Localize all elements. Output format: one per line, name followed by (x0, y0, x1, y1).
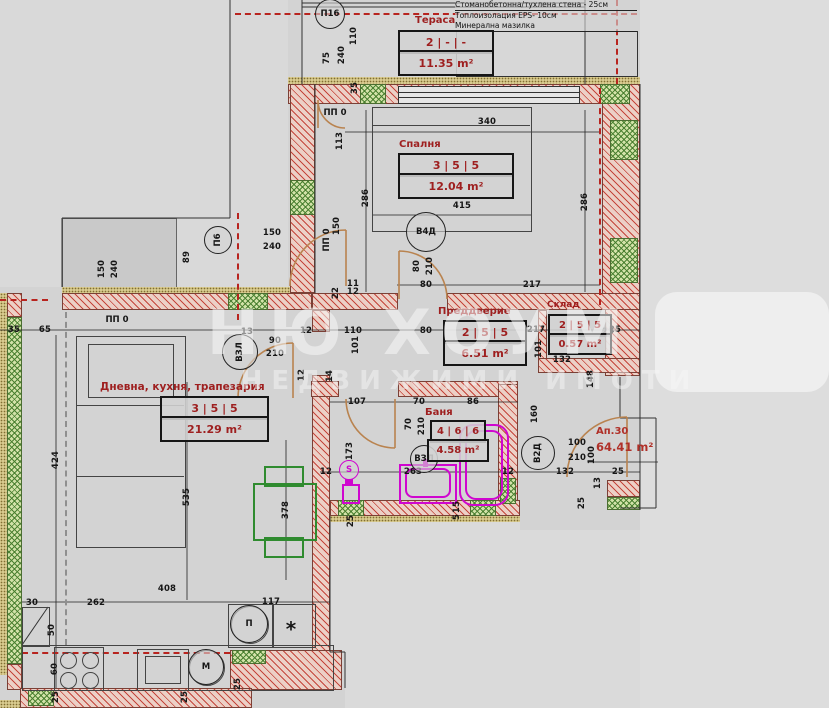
dimension-label: 15 (452, 501, 462, 513)
section-dash-line (65, 312, 67, 645)
red-dashed-axis (237, 213, 239, 320)
dimension-label: 150 (263, 228, 281, 238)
dimension-label: 35 (350, 82, 360, 94)
dimension-label: 210 (425, 257, 435, 275)
dimension-label: 424 (51, 451, 61, 469)
dimension-label: 25 (233, 678, 243, 690)
dimension-label: 117 (262, 597, 280, 607)
dimension-label: 217 (527, 325, 545, 335)
cabinet (22, 607, 50, 647)
dimension-label: 340 (478, 117, 496, 127)
chair (264, 466, 304, 487)
facade-band (330, 516, 520, 522)
outside-area (330, 522, 520, 652)
wall-segment (607, 480, 640, 497)
wall-segment (7, 293, 22, 317)
dimension-label: 240 (337, 46, 347, 64)
dimension-label: 110 (344, 326, 362, 336)
room-area-bedroom: 12.04 m² (398, 173, 514, 199)
door-window-marker: М (188, 649, 224, 685)
room-name-hallway: Преддверие (438, 306, 511, 317)
insulation-segment (607, 497, 640, 510)
room-area-living: 21.29 m² (160, 416, 269, 442)
dimension-label: 90 (269, 336, 281, 346)
door-window-marker: В4Д (406, 212, 446, 252)
dimension-label: 5 (452, 514, 462, 520)
dimension-label: 101 (351, 336, 361, 354)
dimension-label: 80 (420, 280, 432, 290)
door-arc (399, 251, 447, 299)
dimension-label: 60 (50, 663, 60, 675)
dimension-label: 75 (322, 52, 332, 64)
facade-band (0, 293, 7, 675)
dimension-label: 70 (413, 397, 425, 407)
dimension-label: 113 (335, 132, 345, 150)
door-window-marker: П6 (204, 226, 232, 254)
dimension-label: 240 (110, 260, 120, 278)
dimension-label: 35 (8, 325, 20, 335)
legend-line: Стоманобетонна/тухлена стена - 25см (455, 0, 637, 11)
dimension-label: 13 (593, 477, 603, 489)
insulation-segment (228, 293, 268, 310)
red-dashed-axis (0, 299, 48, 301)
dimension-label: 148 (586, 370, 596, 388)
room-name-bedroom: Спалня (399, 139, 441, 150)
dimension-label: 132 (556, 467, 574, 477)
dimension-label: 286 (580, 193, 590, 211)
insulation-segment (7, 317, 22, 664)
dimension-label: 12 (320, 467, 332, 477)
dimension-label: 110 (349, 27, 359, 45)
facade-band (288, 77, 640, 84)
wall-segment (7, 664, 22, 690)
apartment-label: Ап.30 (596, 426, 628, 437)
dimension-label: 262 (87, 598, 105, 608)
dimension-label: 80 (412, 260, 422, 272)
chair (264, 537, 304, 558)
door-window-marker: ВЗЛ (222, 334, 258, 370)
dimension-label: 210 (417, 417, 427, 435)
dimension-label: 101 (534, 340, 544, 358)
dimension-label: 50 (47, 624, 57, 636)
dimension-label: 415 (453, 201, 471, 211)
dimension-label: 30 (26, 598, 38, 608)
dimension-label: 65 (39, 325, 51, 335)
wall-segment (312, 310, 330, 332)
window (398, 86, 580, 104)
dimension-label: 89 (182, 251, 192, 263)
door-window-marker: ПП 0 (105, 315, 128, 325)
door-window-marker: П (230, 605, 268, 643)
dimension-label: 535 (182, 488, 192, 506)
dimension-label: 160 (530, 405, 540, 423)
dimension-label: 25 (51, 691, 61, 703)
dimension-label: 217 (523, 280, 541, 290)
dimension-label: 70 (404, 418, 414, 430)
dimension-label: 240 (263, 242, 281, 252)
dimension-label: 378 (281, 501, 291, 519)
insulation-segment (610, 120, 638, 160)
door-window-marker: ПП 0 (322, 228, 332, 251)
toilet (342, 484, 360, 504)
insulation-segment (610, 238, 638, 283)
stove-burner (60, 652, 77, 669)
floor-plan-canvas: Стоманобетонна/тухлена стена - 25см Топл… (0, 0, 829, 708)
dimension-label: 286 (361, 189, 371, 207)
dimension-label: 80 (420, 326, 432, 336)
dimension-label: 14 (325, 370, 335, 382)
wall-segment (62, 293, 312, 310)
stove-burner (82, 652, 99, 669)
insulation-segment (600, 84, 630, 104)
outside-area (640, 0, 829, 708)
room-name-living: Дневна, кухня, трапезария (100, 381, 265, 393)
dimension-label: 86 (467, 397, 479, 407)
door-window-marker: S (339, 460, 359, 480)
dimension-label: 12 (300, 326, 312, 336)
door-window-marker: П16 (315, 0, 345, 29)
dimension-label: 25 (346, 515, 356, 527)
room-area-bath: 4.58 m² (427, 439, 489, 462)
legend: Стоманобетонна/тухлена стена - 25см Топл… (455, 0, 637, 32)
room-area-terrace: 11.35 m² (398, 50, 494, 76)
dimension-label: 150 (332, 217, 342, 235)
room-name-closet: Склад (547, 300, 580, 310)
dimension-label: 107 (348, 397, 366, 407)
dimension-label: 25 (577, 497, 587, 509)
door-window-marker: ПП 0 (323, 108, 346, 118)
door-window-marker: * (286, 617, 296, 641)
legend-line: Топлоизолация EPS- 10см (455, 11, 637, 21)
stove-burner (60, 672, 77, 689)
door-window-marker: В2Д (521, 436, 555, 470)
room-area-closet: 0.57 m² (548, 333, 612, 355)
dimension-label: 22 (331, 287, 341, 299)
dimension-label: 12 (502, 467, 514, 477)
dimension-label: 25 (612, 467, 624, 477)
apartment-area: 64.41 m² (596, 440, 653, 454)
neighbor-terrace (62, 218, 177, 289)
dimension-label: 100 (568, 438, 586, 448)
dimension-label: 25 (180, 691, 190, 703)
room-name-terrace: Тераса (415, 15, 455, 26)
dimension-label: 132 (553, 355, 571, 365)
dimension-label: 408 (158, 584, 176, 594)
room-area-hallway: 6.51 m² (443, 340, 527, 366)
dimension-label: 173 (345, 442, 355, 460)
kitchen-sink-basin (145, 656, 181, 684)
insulation-segment (290, 180, 315, 215)
insulation-segment (360, 84, 386, 104)
dimension-label: 12 (347, 287, 359, 297)
dimension-label: 12 (297, 369, 307, 381)
wall-segment (311, 381, 339, 397)
stove-burner (82, 672, 99, 689)
room-name-bath: Баня (425, 407, 453, 418)
dimension-label: 150 (97, 260, 107, 278)
dimension-label: 210 (266, 349, 284, 359)
red-dashed-axis (599, 88, 601, 305)
bed-headboard (372, 107, 530, 126)
dimension-label: 210 (568, 453, 586, 463)
